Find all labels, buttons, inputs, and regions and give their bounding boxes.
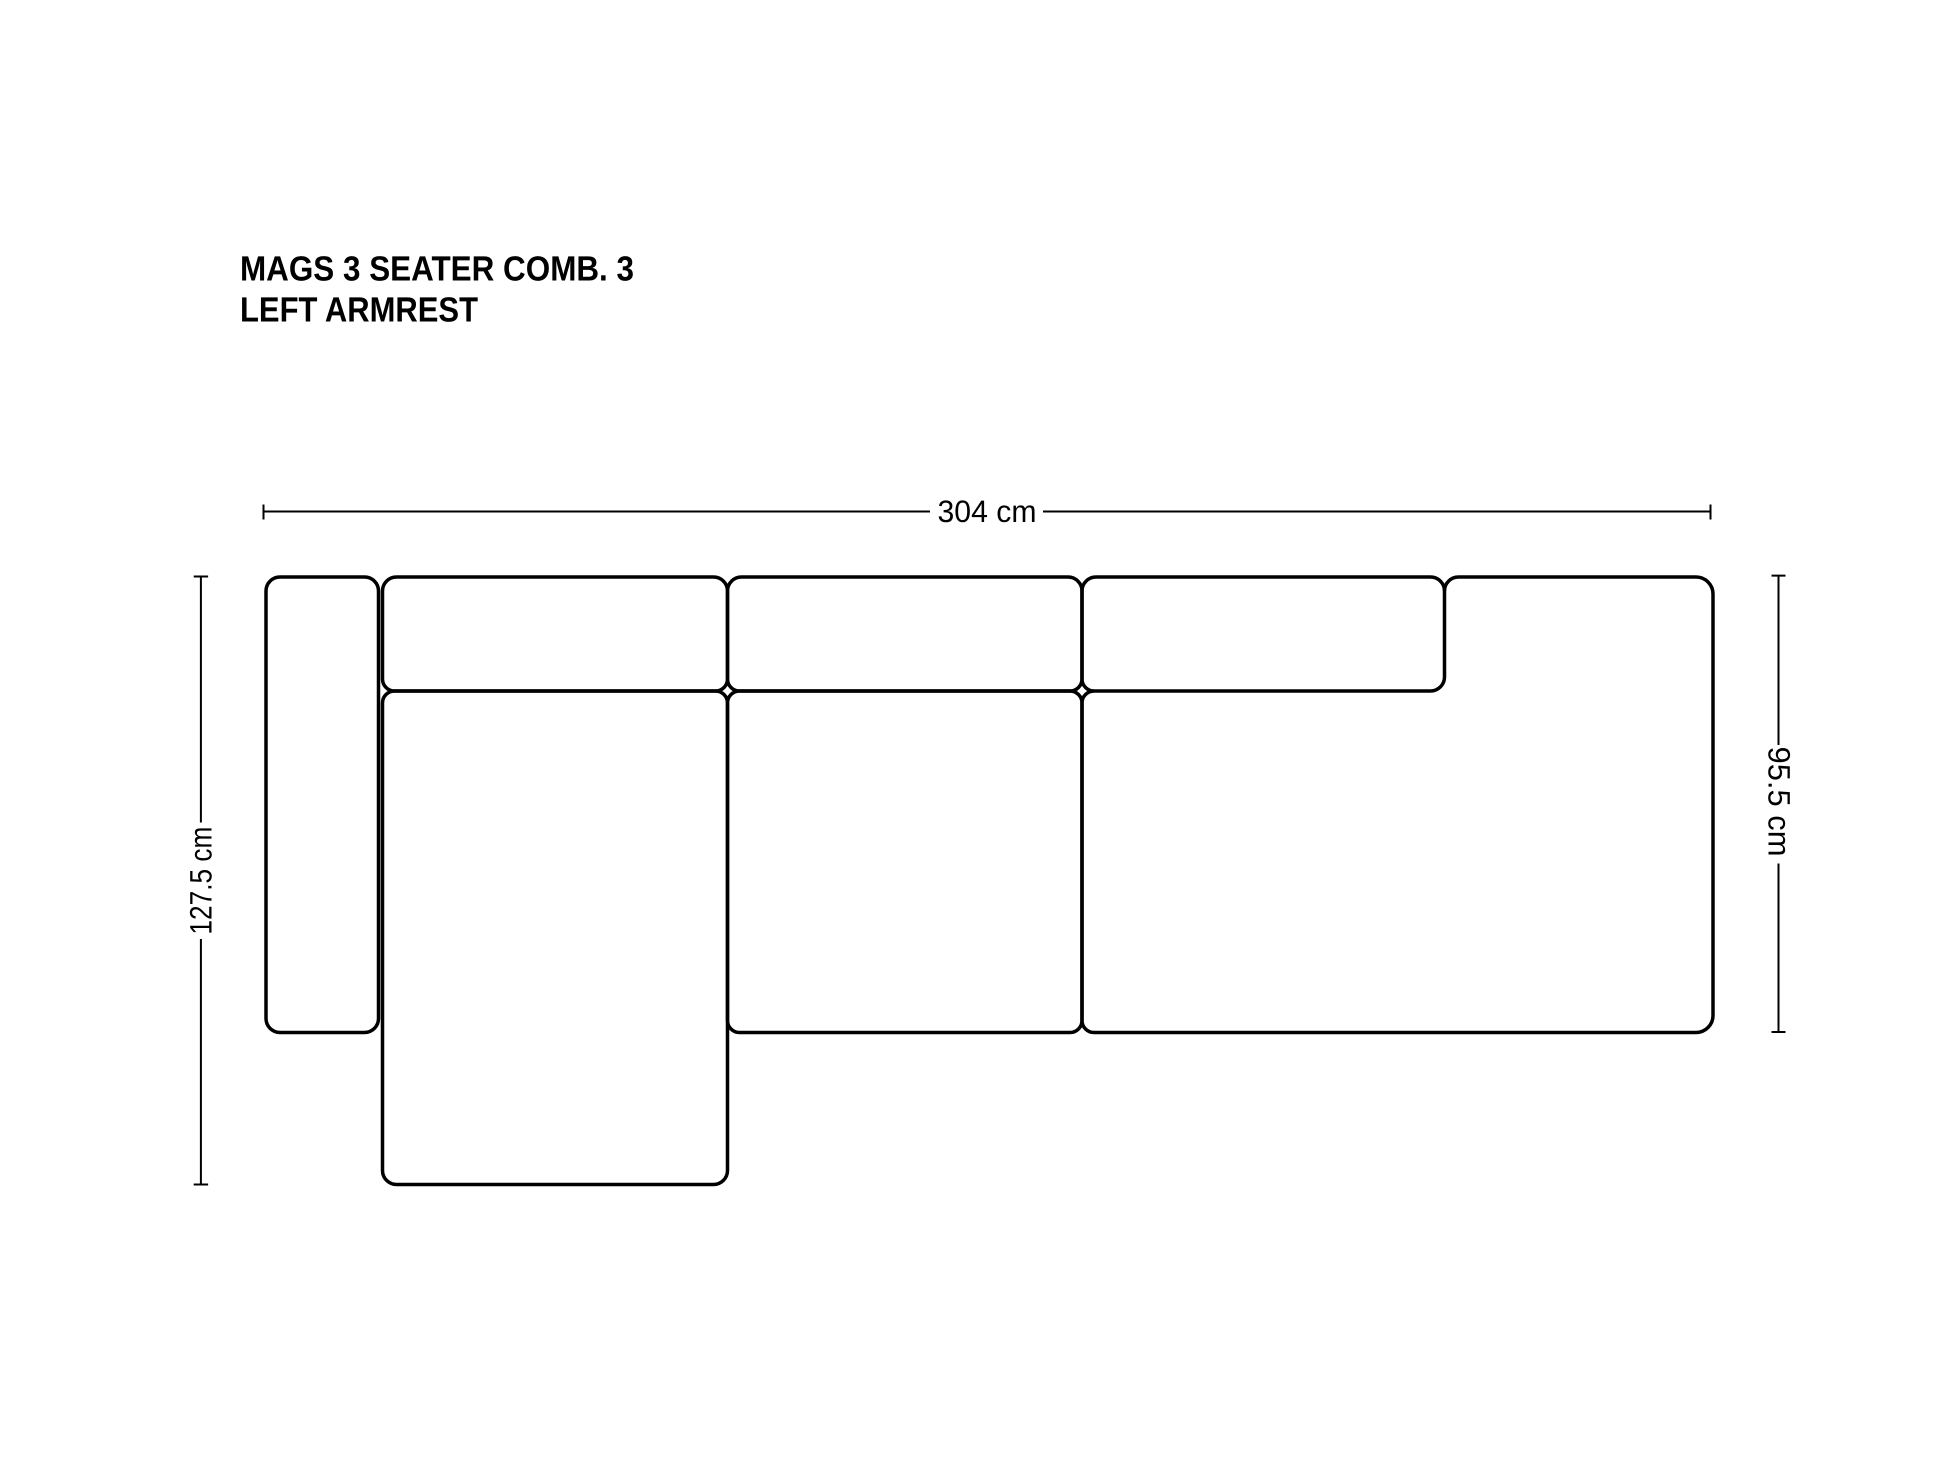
svg-text:95.5 cm: 95.5 cm bbox=[1761, 747, 1796, 857]
svg-text:304 cm: 304 cm bbox=[938, 494, 1037, 529]
svg-text:LEFT ARMREST: LEFT ARMREST bbox=[240, 291, 478, 330]
svg-text:MAGS 3 SEATER COMB. 3: MAGS 3 SEATER COMB. 3 bbox=[240, 250, 634, 289]
svg-text:127.5 cm: 127.5 cm bbox=[184, 827, 219, 935]
